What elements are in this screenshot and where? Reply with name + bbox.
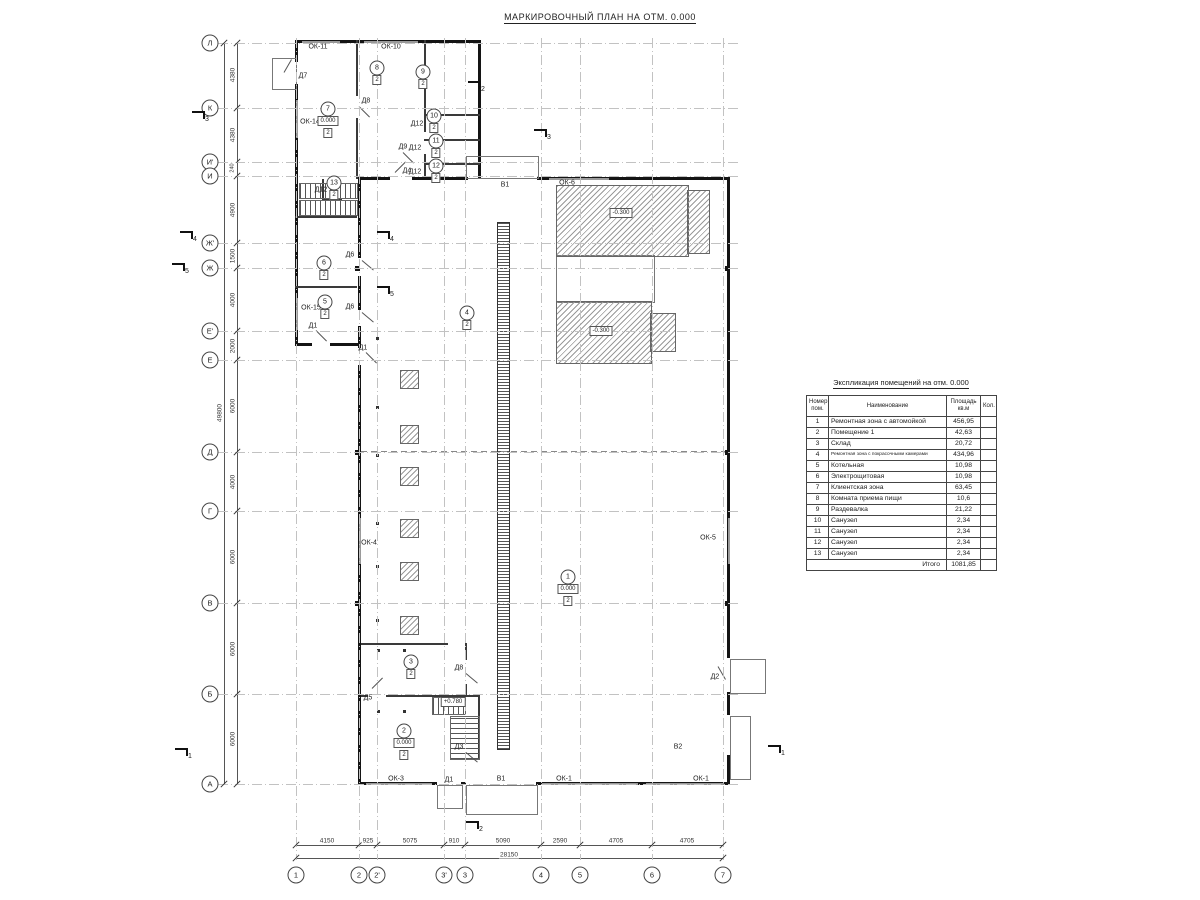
schedule-cell-area: 10,6	[947, 494, 981, 505]
axis-circle-1: 1	[288, 867, 305, 884]
section-mark-1: 1	[175, 748, 197, 762]
room-finish-type: 2	[323, 128, 332, 138]
table-row: 5Котельная10,98	[807, 461, 997, 472]
dim-value: 5075	[402, 838, 418, 845]
room-number-1: 1	[561, 570, 576, 585]
plan-label-д12: Д12	[411, 121, 424, 128]
table-row: 1Ремонтная зона с автомойкой456,95	[807, 417, 997, 428]
schedule-cell-area: 42,63	[947, 428, 981, 439]
wall	[361, 643, 448, 645]
schedule-column-header: Номер. пом.	[807, 396, 829, 417]
schedule-cell-num: 11	[807, 527, 829, 538]
wall	[295, 286, 357, 288]
axis-circle-4: 4	[533, 867, 550, 884]
plan-label-д12: Д12	[409, 145, 422, 152]
room-schedule: Экспликация помещений на отм. 0.000 Номе…	[806, 378, 996, 571]
schedule-cell-name: Котельная	[829, 461, 947, 472]
dim-value: 910	[448, 838, 461, 845]
axis-circle-2': 2'	[369, 867, 386, 884]
room-number-10: 10	[427, 109, 442, 124]
room-elevation: 0.000	[317, 116, 338, 126]
table-row: 12Санузел2,34	[807, 538, 997, 549]
column	[400, 370, 419, 389]
room-number-5: 5	[318, 295, 333, 310]
axis-circle-Г: Г	[202, 503, 219, 520]
schedule-cell-name: Санузел	[829, 549, 947, 560]
schedule-cell-area: 2,34	[947, 516, 981, 527]
wall	[727, 177, 730, 658]
room-number-2: 2	[397, 724, 412, 739]
schedule-cell-name: Помещение 1	[829, 428, 947, 439]
room-finish-type: 2	[462, 320, 471, 330]
schedule-cell-num: 13	[807, 549, 829, 560]
plan-label-д6: Д6	[346, 304, 355, 311]
window-ok5	[728, 518, 730, 564]
grid-line-6	[652, 38, 653, 860]
paint-chamber-a-unit	[687, 190, 710, 254]
room-number-4: 4	[460, 306, 475, 321]
plan-label-ок-6: ОК-6	[559, 180, 575, 187]
schedule-cell-qty	[981, 538, 997, 549]
schedule-cell-qty	[981, 450, 997, 461]
schedule-cell-name: Ремонтная зона с автомойкой	[829, 417, 947, 428]
plan-label-д1: Д1	[359, 345, 368, 352]
plan-label-д1: Д1	[445, 777, 454, 784]
section-mark-5: 5	[377, 286, 399, 300]
schedule-cell-area: 434,96	[947, 450, 981, 461]
dim-value: 5090	[495, 838, 511, 845]
schedule-title: Экспликация помещений на отм. 0.000	[806, 378, 996, 387]
plan-label-ок-10: ОК-10	[381, 44, 401, 51]
dim-value: 6000	[230, 731, 237, 747]
schedule-cell-name: Ремонтная зона с покрасочными камерами	[829, 450, 947, 461]
room-number-11: 11	[429, 134, 444, 149]
schedule-cell-qty	[981, 461, 997, 472]
section-mark-3: 3	[534, 129, 556, 143]
schedule-table: Номер. пом.НаименованиеПлощадь кв.мКол. …	[806, 395, 997, 571]
axis-circle-2: 2	[351, 867, 368, 884]
plan-label-д12: Д12	[315, 187, 328, 194]
table-row: 3Склад20,72	[807, 439, 997, 450]
axis-circle-7: 7	[715, 867, 732, 884]
plan-label-ок-3: ОК-3	[388, 776, 404, 783]
axis-circle-И: И	[202, 168, 219, 185]
schedule-cell-name: Электрощитовая	[829, 472, 947, 483]
table-row: 7Клиентская зона63,45	[807, 483, 997, 494]
column	[400, 562, 419, 581]
plan-label-ок-5: ОК-5	[700, 535, 716, 542]
axis-circle-Е: Е	[202, 352, 219, 369]
schedule-cell-area: 20,72	[947, 439, 981, 450]
plan-label-ок-1: ОК-1	[693, 776, 709, 783]
staircase-main-lower	[299, 200, 358, 216]
schedule-cell-name: Комната приема пищи	[829, 494, 947, 505]
wall	[727, 692, 730, 715]
section-mark-2: 2	[466, 821, 488, 835]
elevation-mark: +0.780	[441, 697, 466, 707]
section-mark-2: 2	[468, 81, 490, 95]
schedule-cell-num: 7	[807, 483, 829, 494]
section-mark-5: 5	[172, 263, 194, 277]
room-finish-type: 2	[399, 750, 408, 760]
plan-label-ок-4: ОК-4	[361, 540, 377, 547]
column	[400, 616, 419, 635]
elevation-mark: -0.300	[589, 326, 612, 336]
schedule-cell-area: 10,98	[947, 472, 981, 483]
axis-circle-Д: Д	[202, 444, 219, 461]
schedule-cell-num: 9	[807, 505, 829, 516]
room-number-9: 9	[416, 65, 431, 80]
grid-line-4	[541, 38, 542, 860]
dim-value: 6000	[230, 398, 237, 414]
grid-line-1	[296, 38, 297, 860]
dim-value: 2000	[230, 338, 237, 354]
column	[400, 425, 419, 444]
wall	[295, 216, 357, 218]
grid-line-3	[465, 38, 466, 860]
dim-value: 925	[362, 838, 375, 845]
schedule-cell-qty	[981, 428, 997, 439]
schedule-cell-qty	[981, 516, 997, 527]
grid-line-7	[723, 38, 724, 860]
wall	[356, 118, 358, 179]
axis-circle-Е': Е'	[202, 323, 219, 340]
porch-d7	[272, 58, 297, 90]
schedule-cell-area: 21,22	[947, 505, 981, 516]
column	[400, 467, 419, 486]
axis-circle-3: 3	[457, 867, 474, 884]
gate-v1-bottom-apron	[466, 785, 538, 815]
room-number-3: 3	[404, 655, 419, 670]
schedule-cell-qty	[981, 472, 997, 483]
axis-circle-В: В	[202, 595, 219, 612]
paint-chamber-outline	[556, 255, 655, 303]
grid-line-3'	[444, 38, 445, 860]
plan-label-ок-11: ОК-11	[308, 44, 327, 51]
table-row: 13Санузел2,34	[807, 549, 997, 560]
door-leader	[362, 312, 374, 322]
schedule-cell-name: Санузел	[829, 538, 947, 549]
total-value: 1081,85	[947, 560, 981, 571]
door-leader	[366, 352, 377, 363]
wall	[358, 177, 390, 180]
axis-circle-Б: Б	[202, 686, 219, 703]
dim-value: 4705	[608, 838, 624, 845]
room-number-12: 12	[429, 159, 444, 174]
schedule-cell-name: Санузел	[829, 527, 947, 538]
axis-circle-6: 6	[644, 867, 661, 884]
dim-value: 4000	[230, 474, 237, 490]
schedule-cell-name: Санузел	[829, 516, 947, 527]
section-mark-3: 3	[192, 111, 214, 125]
dim-value: 1500	[230, 248, 237, 264]
schedule-cell-area: 63,45	[947, 483, 981, 494]
plan-label-в1: В1	[497, 776, 506, 783]
schedule-cell-name: Раздевалка	[829, 505, 947, 516]
plan-label-в1: В1	[501, 182, 510, 189]
schedule-cell-num: 2	[807, 428, 829, 439]
plan-label-д1: Д1	[309, 323, 318, 330]
room-elevation: 0.000	[557, 584, 578, 594]
gate-v2-apron	[730, 716, 751, 780]
plan-label-ок-1: ОК-1	[556, 776, 572, 783]
schedule-column-header: Площадь кв.м	[947, 396, 981, 417]
dim-value: 4380	[230, 67, 237, 83]
plan-label-д3: Д3	[455, 744, 464, 751]
schedule-cell-name: Клиентская зона	[829, 483, 947, 494]
room-elevation: 0.000	[393, 738, 414, 748]
room-finish-type: 2	[320, 309, 329, 319]
paint-chamber-a	[556, 185, 689, 257]
schedule-cell-name: Склад	[829, 439, 947, 450]
axis-circle-Ж: Ж	[202, 260, 219, 277]
schedule-cell-qty	[981, 560, 997, 571]
room-number-13: 13	[327, 176, 342, 191]
dim-total: 28150	[499, 852, 519, 859]
room-finish-type: 2	[431, 148, 440, 158]
drawing-sheet: МАРКИРОВОЧНЫЙ ПЛАН НА ОТМ. 0.000	[0, 0, 1200, 900]
plan-label-д5: Д5	[364, 695, 373, 702]
plan-label-д9: Д9	[399, 144, 408, 151]
dim-chain-left-total	[224, 43, 225, 784]
room-finish-type: 2	[418, 79, 427, 89]
room-finish-type: 2	[329, 190, 338, 200]
schedule-cell-area: 2,34	[947, 549, 981, 560]
table-row: 6Электрощитовая10,98	[807, 472, 997, 483]
wall	[356, 40, 358, 96]
room-finish-type: 2	[429, 123, 438, 133]
axis-circle-Ж': Ж'	[202, 235, 219, 252]
schedule-cell-area: 456,95	[947, 417, 981, 428]
schedule-cell-qty	[981, 505, 997, 516]
schedule-cell-area: 10,98	[947, 461, 981, 472]
dim-value: 4150	[319, 838, 335, 845]
schedule-cell-num: 8	[807, 494, 829, 505]
window-ok6	[549, 178, 609, 180]
table-row: 11Санузел2,34	[807, 527, 997, 538]
axis-circle-3': 3'	[436, 867, 453, 884]
dim-value: 4705	[679, 838, 695, 845]
schedule-cell-num: 3	[807, 439, 829, 450]
room-finish-type: 2	[431, 173, 440, 183]
table-row: 10Санузел2,34	[807, 516, 997, 527]
dim-chain-left	[237, 43, 238, 784]
room-finish-type: 2	[372, 75, 381, 85]
plan-label-д6: Д6	[346, 252, 355, 259]
plan-label-д12: Д12	[409, 169, 422, 176]
dim-value: 6000	[230, 641, 237, 657]
schedule-cell-num: 5	[807, 461, 829, 472]
table-total-row: Итого1081,85	[807, 560, 997, 571]
schedule-column-header: Кол.	[981, 396, 997, 417]
column-marker	[403, 710, 406, 713]
room-finish-type: 2	[406, 669, 415, 679]
dim-value: 4900	[230, 202, 237, 218]
plan-label-д8: Д8	[362, 98, 371, 105]
dim-chain-bottom	[296, 845, 723, 846]
column-marker	[403, 649, 406, 652]
axis-circle-5: 5	[572, 867, 589, 884]
schedule-cell-qty	[981, 527, 997, 538]
schedule-cell-qty	[981, 483, 997, 494]
plan-label-д8: Д8	[455, 665, 464, 672]
table-row: 2Помещение 142,63	[807, 428, 997, 439]
wall	[330, 343, 360, 346]
schedule-cell-num: 4	[807, 450, 829, 461]
inspection-pit	[497, 222, 510, 750]
dim-value: 4000	[230, 292, 237, 308]
schedule-cell-num: 10	[807, 516, 829, 527]
schedule-cell-qty	[981, 494, 997, 505]
grid-line-5	[580, 38, 581, 860]
dim-total: 49800	[217, 403, 224, 423]
table-row: 8Комната приема пищи10,6	[807, 494, 997, 505]
schedule-cell-num: 1	[807, 417, 829, 428]
column	[400, 519, 419, 538]
elevation-mark: -0.300	[609, 208, 632, 218]
schedule-cell-area: 2,34	[947, 538, 981, 549]
room-finish-type: 2	[319, 270, 328, 280]
section-mark-4: 4	[377, 231, 399, 245]
paint-chamber-b-unit	[650, 313, 676, 352]
total-label: Итого	[807, 560, 947, 571]
schedule-cell-qty	[981, 417, 997, 428]
schedule-cell-num: 6	[807, 472, 829, 483]
wall	[295, 343, 312, 346]
porch-d1	[437, 785, 463, 809]
vestibule-d2	[730, 659, 766, 694]
door-leader	[466, 673, 478, 683]
table-row: 9Раздевалка21,22	[807, 505, 997, 516]
dim-value: 2590	[552, 838, 568, 845]
section-mark-4: 4	[180, 231, 202, 245]
plan-label-в2: В2	[674, 744, 683, 751]
plan-label-д2: Д2	[711, 674, 720, 681]
schedule-cell-area: 2,34	[947, 527, 981, 538]
schedule-cell-qty	[981, 439, 997, 450]
dim-value: 6000	[230, 549, 237, 565]
axis-circle-А: А	[202, 776, 219, 793]
drawing-title: МАРКИРОВОЧНЫЙ ПЛАН НА ОТМ. 0.000	[0, 12, 1200, 22]
room-number-6: 6	[317, 256, 332, 271]
dim-value: 4380	[230, 127, 237, 143]
axis-circle-Л: Л	[202, 35, 219, 52]
schedule-cell-qty	[981, 549, 997, 560]
table-row: 4Ремонтная зона с покрасочными камерами4…	[807, 450, 997, 461]
dim-tick	[719, 854, 726, 861]
schedule-column-header: Наименование	[829, 396, 947, 417]
room-number-7: 7	[321, 102, 336, 117]
room-finish-type: 2	[563, 596, 572, 606]
schedule-cell-num: 12	[807, 538, 829, 549]
grid-line-2'	[377, 38, 378, 860]
room-number-8: 8	[370, 61, 385, 76]
section-mark-1: 1	[768, 745, 790, 759]
plan-label-д7: Д7	[299, 73, 308, 80]
grid-line-2	[359, 38, 360, 860]
dim-value: 240	[230, 162, 237, 173]
